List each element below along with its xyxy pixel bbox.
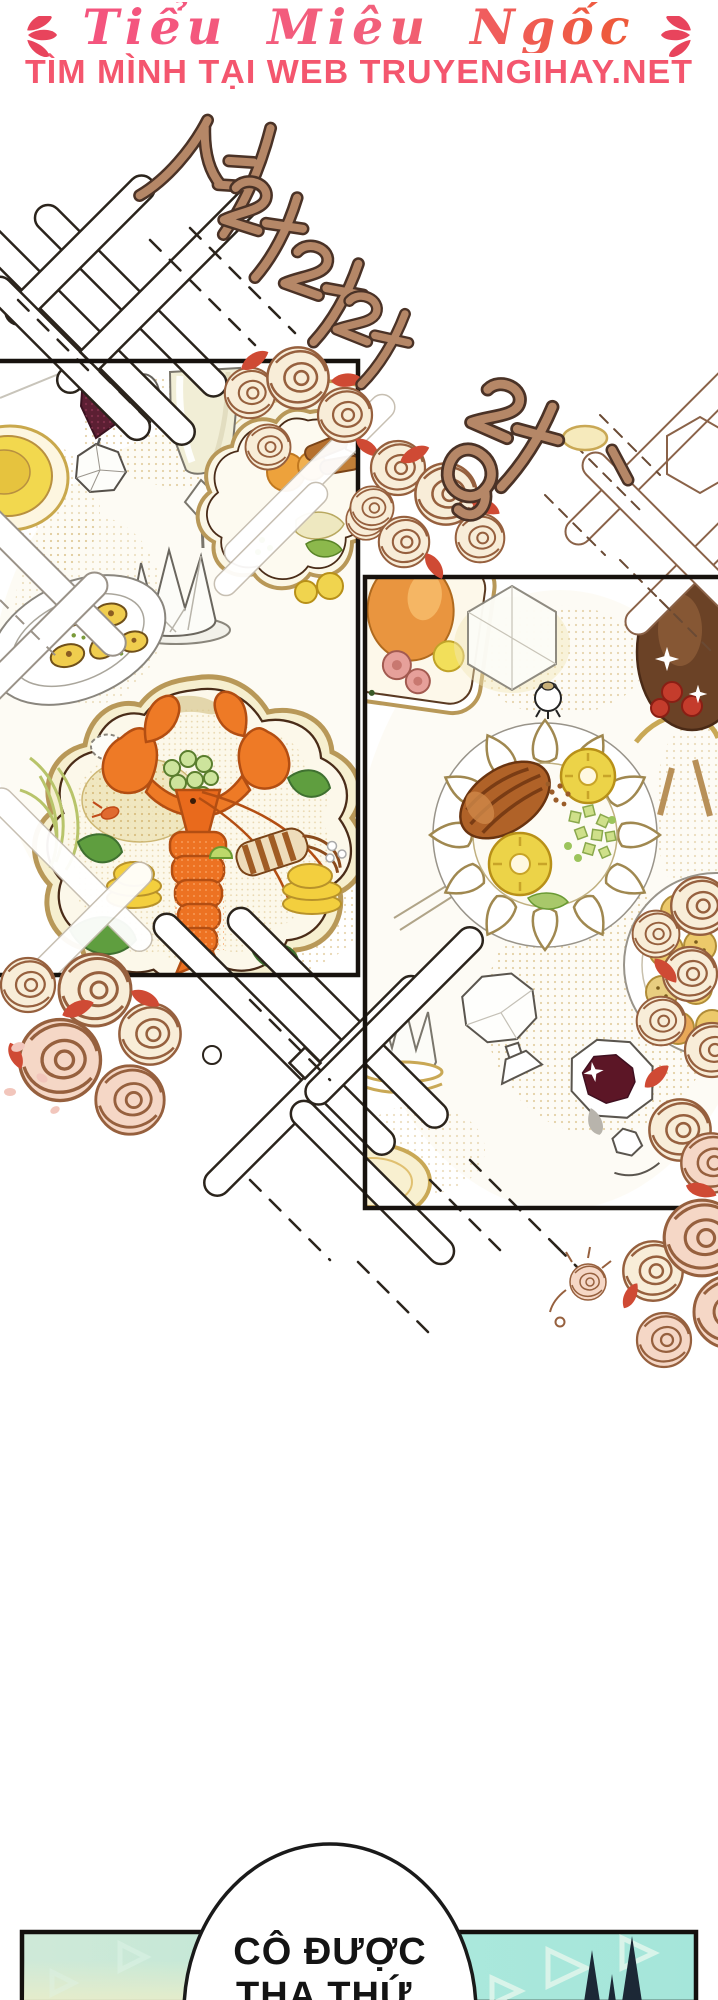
watermark-subtitle: TÌM MÌNH TẠI WEB TRUYENGIHAY.NET	[0, 53, 718, 91]
comic-artwork: CÔ ĐƯỢC THA THỨ,	[0, 0, 718, 2000]
comic-page: Tiểu Miêu Ngốc TÌM MÌNH TẠI WEB TRUYENGI…	[0, 0, 718, 2000]
leaf-ornament-icon	[24, 16, 66, 60]
bee	[535, 682, 561, 719]
speech-bubble: CÔ ĐƯỢC THA THỨ,	[184, 1844, 476, 2000]
speech-line-1: CÔ ĐƯỢC	[233, 1928, 426, 1973]
page-title: Tiểu Miêu Ngốc	[82, 2, 635, 53]
header: Tiểu Miêu Ngốc TÌM MÌNH TẠI WEB TRUYENGI…	[0, 0, 718, 91]
speech-line-2: THA THỨ,	[236, 1973, 424, 2000]
rose-cluster-bottom-left	[1, 954, 181, 1134]
rose-bud	[550, 1247, 611, 1327]
leaf-ornament-icon	[652, 16, 694, 60]
